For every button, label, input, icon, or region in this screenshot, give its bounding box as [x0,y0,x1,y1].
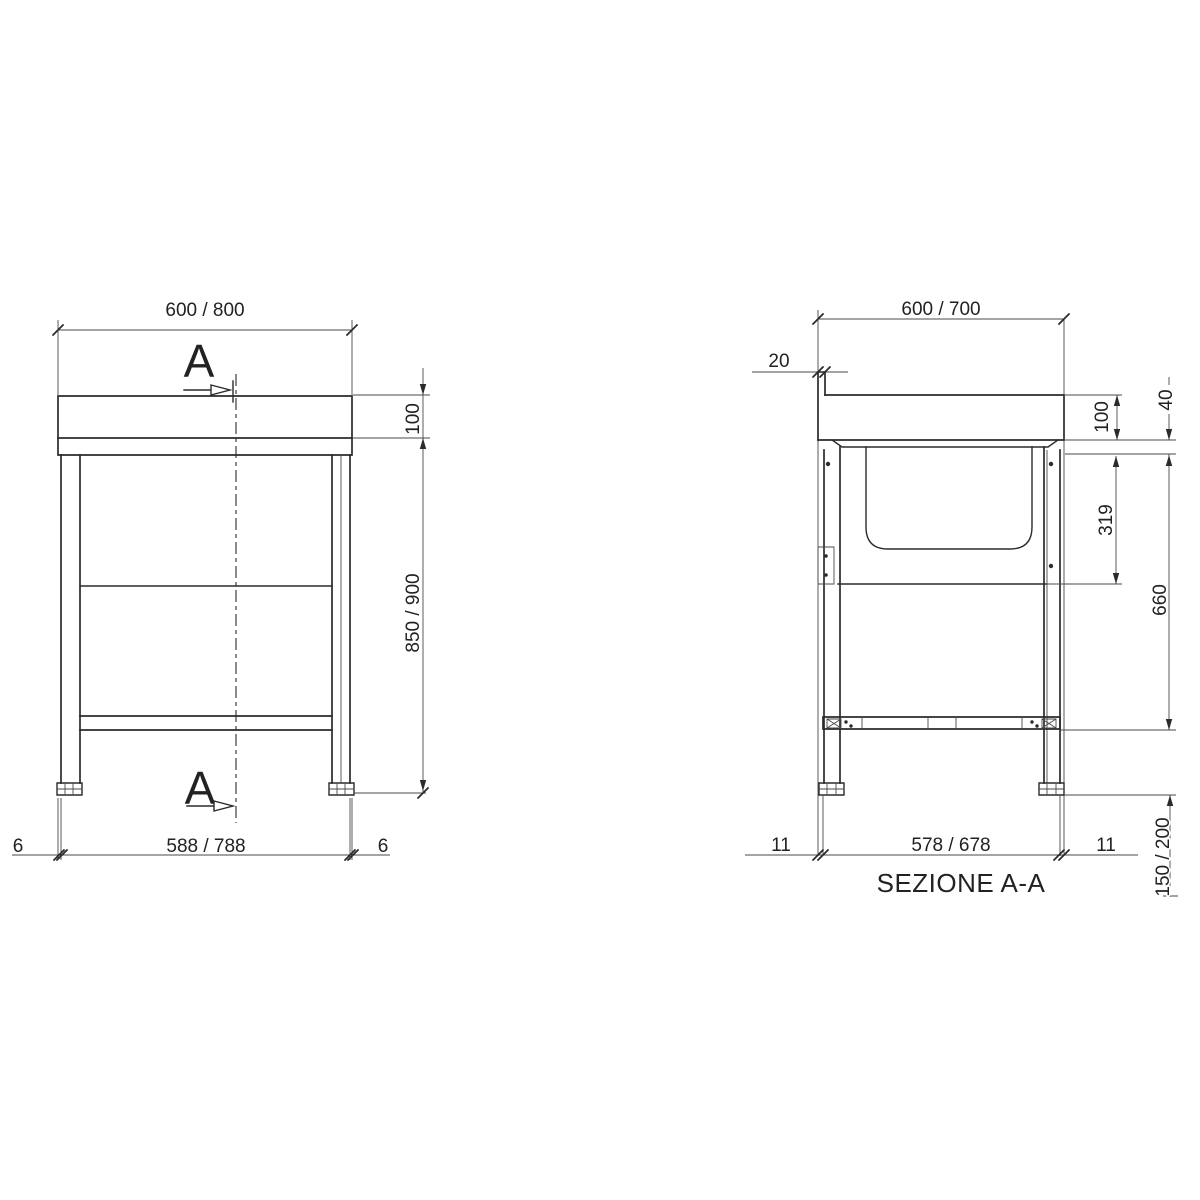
section-leg-front [824,447,840,783]
drawing-canvas: A A 600 / 800 100 850 / 900 [0,0,1200,1200]
front-foot-left [57,783,82,795]
section-view-title: SEZIONE A-A [877,868,1046,898]
front-structure [57,374,354,823]
dim-bowl-depth-label: 319 [1096,504,1117,536]
bolt-dot-icon [1035,724,1038,727]
dim-arrow-icon [420,384,426,395]
dim-arrow-icon [1113,456,1119,467]
screw-dot-icon [1049,564,1053,568]
section-worktop [818,395,1064,440]
section-view: 600 / 700 20 100 40 319 [745,299,1178,898]
dim-front-width-label: 600 / 800 [165,300,244,321]
dim-section-leg-span-label: 578 / 678 [911,835,990,856]
dim-front-leg-span-label: 588 / 788 [166,836,245,857]
section-foot-front [819,783,844,795]
section-leg-rear [1044,447,1060,783]
section-cut-mark-top: A [184,335,233,402]
screw-dot-icon [826,462,830,466]
dim-edge-height-label: 40 [1156,389,1177,410]
dim-arrow-icon [1166,455,1172,466]
dim-arrow-icon [1167,795,1173,806]
dim-section-edge-left-label: 11 [771,835,791,856]
front-leg-left [61,455,80,783]
section-cut-arrow-icon [214,801,233,811]
section-worktop-lip [832,440,1058,447]
front-dimensions: 600 / 800 100 850 / 900 6 588 / 788 6 [12,300,430,860]
section-structure [818,310,1064,856]
section-foot-rear [1039,783,1064,795]
dim-section-top-height-label: 100 [1092,401,1113,433]
dim-foot-height-label: 150 / 200 [1153,817,1174,896]
dim-splash-label: 20 [768,351,789,372]
bolt-dot-icon [849,724,852,727]
dim-section-edge-right-label: 11 [1096,835,1116,856]
bolt-dot-icon [844,720,847,723]
dim-front-edge-left-label: 6 [13,836,24,857]
screw-dot-icon [824,573,828,577]
dim-arrow-icon [1114,429,1120,440]
front-foot-right [329,783,354,795]
dim-arrow-icon [1114,395,1120,406]
section-sink-bowl [866,447,1032,549]
section-leg-mounting-plate [818,547,834,584]
screw-dot-icon [1049,462,1053,466]
dim-arrow-icon [1113,573,1119,584]
section-lower-frame [823,717,1060,729]
technical-drawing-page: A A 600 / 800 100 850 / 900 [0,0,1200,1200]
front-undershelf [80,716,332,730]
dim-arrow-icon [420,780,426,791]
section-edge-extensions [818,310,1064,856]
dim-section-depth-label: 600 / 700 [901,299,980,320]
bolt-dot-icon [1030,720,1033,723]
dim-arrow-icon [1166,429,1172,440]
dim-arrow-icon [420,438,426,449]
front-view: A A 600 / 800 100 850 / 900 [12,300,430,860]
dim-arrow-icon [1166,719,1172,730]
dim-front-edge-right-label: 6 [378,836,389,857]
dim-front-top-height-label: 100 [403,403,424,435]
dim-front-body-height-label: 850 / 900 [403,573,424,652]
section-cut-mark-bottom: A [185,762,233,814]
section-cut-arrow-icon [211,385,230,395]
section-cut-label-top: A [184,335,215,387]
section-backsplash [818,372,825,440]
screw-dot-icon [824,554,828,558]
section-dimensions: 600 / 700 20 100 40 319 [745,299,1178,897]
dim-under-top-label: 660 [1150,584,1171,616]
front-worktop [58,396,352,455]
